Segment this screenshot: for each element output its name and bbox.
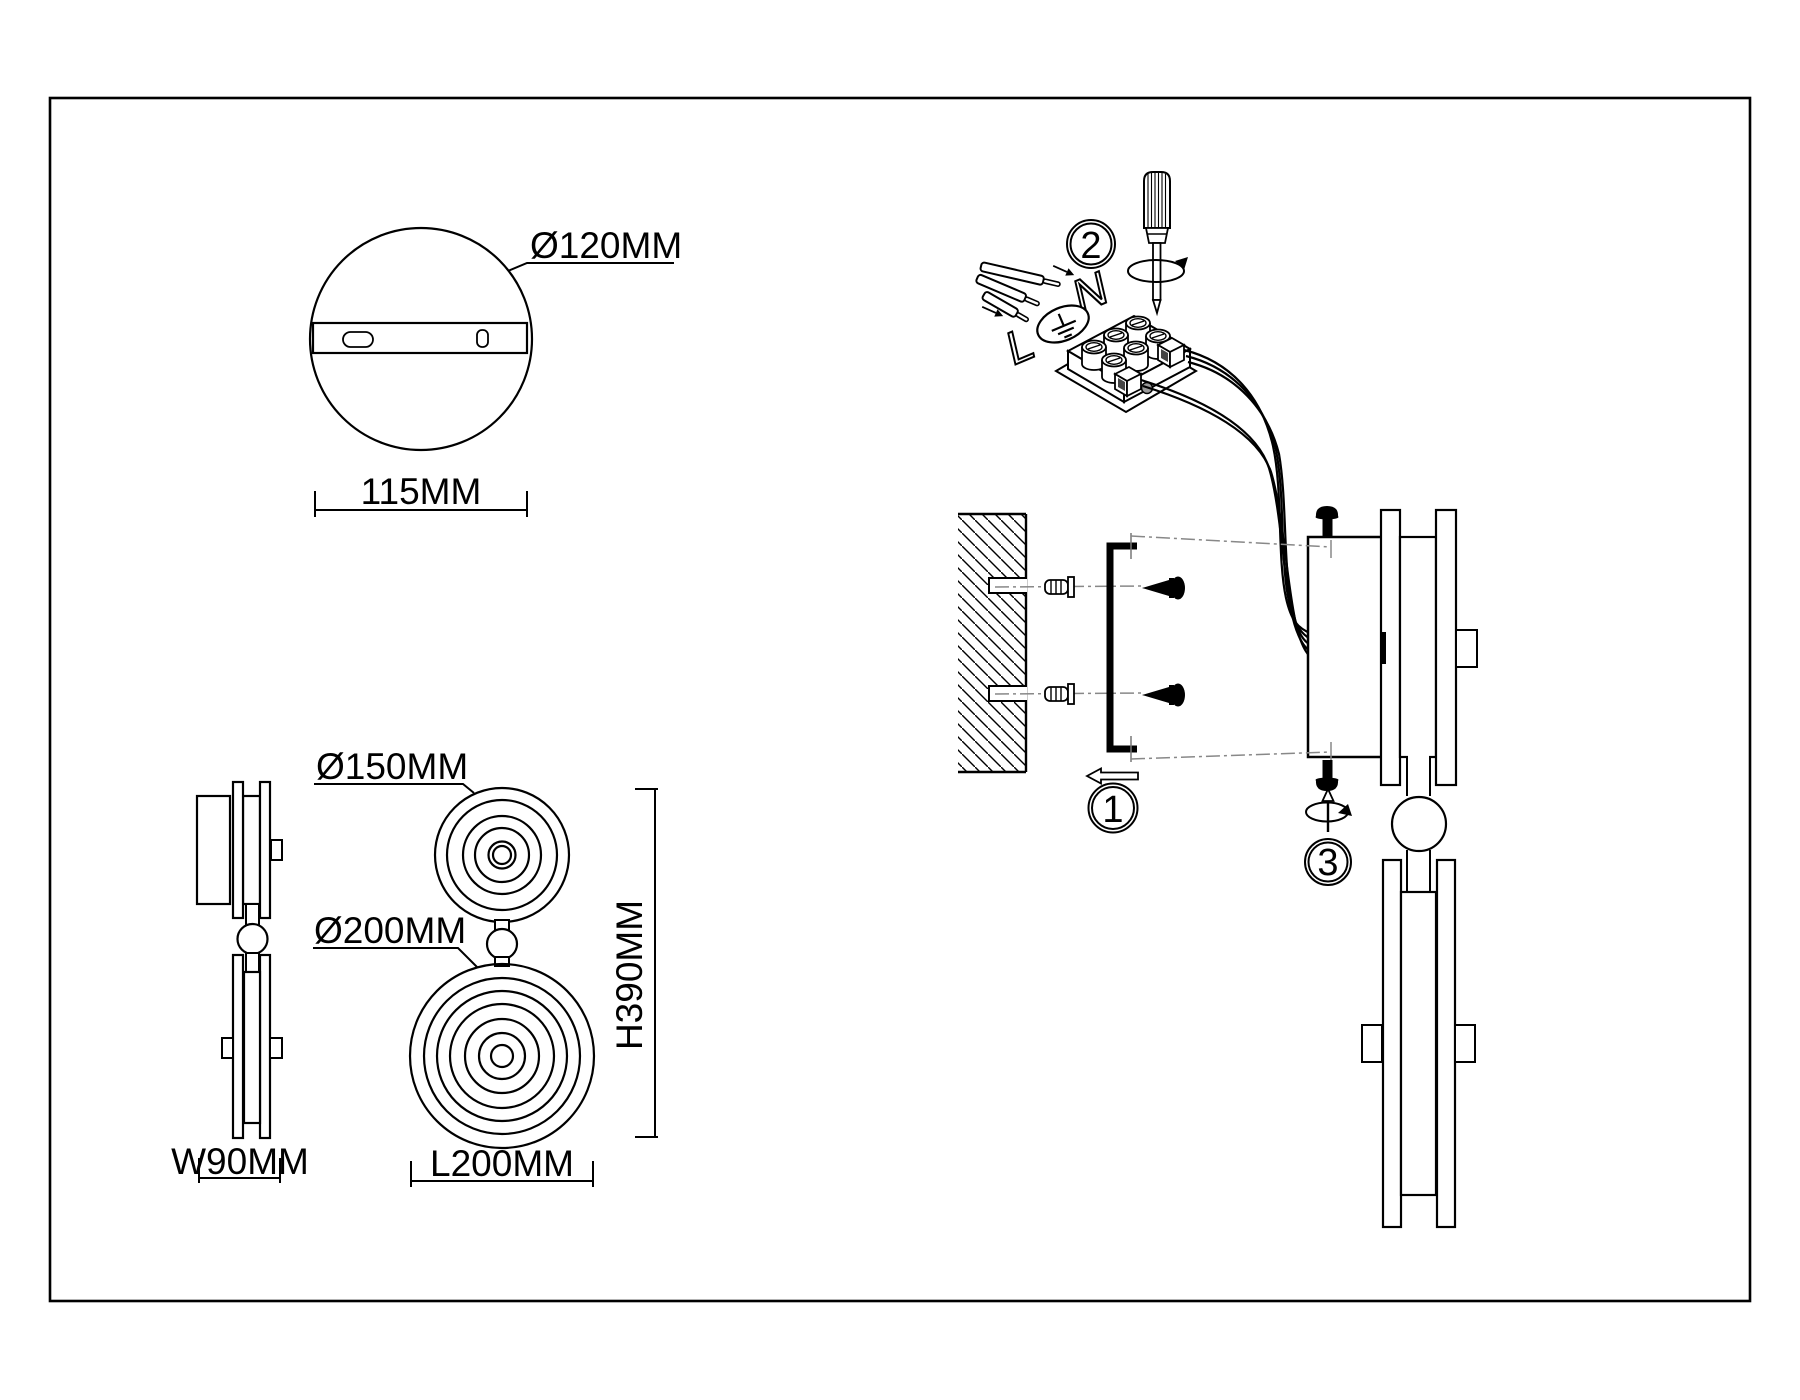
disc-hub-lower: [1401, 892, 1436, 1195]
step-2-number: 2: [1080, 225, 1101, 267]
side-top-disc-front: [260, 782, 270, 918]
fixing-screw-bottom-icon: [1316, 760, 1339, 791]
mounting-screws: [1142, 577, 1185, 707]
canopy-width-dim: 115MM: [315, 471, 527, 517]
drawing-border: [50, 98, 1750, 1301]
lamp-front-view: [410, 788, 594, 1148]
side-mount-box: [197, 796, 230, 904]
step-1-indicator: 1: [1087, 769, 1138, 833]
wall-lamp-installation-drawing: Ø120MM 115MM W90MM: [0, 0, 1800, 1400]
side-bottom-disc-front: [260, 955, 270, 1138]
lamp-driver-box: [1308, 537, 1382, 757]
screw-icon: [1142, 577, 1185, 600]
front-ball-joint: [487, 929, 517, 959]
disc-edge-2: [1436, 510, 1456, 785]
side-top-disc-back: [233, 782, 243, 918]
ball-joint: [1392, 797, 1446, 851]
side-neck-lower: [246, 953, 259, 972]
canopy-width-label: 115MM: [361, 471, 482, 512]
step-1-number: 1: [1102, 789, 1123, 831]
side-bottom-tab-right: [270, 1038, 282, 1058]
step-3-indicator: 3: [1305, 789, 1352, 885]
front-bottom-shade: [410, 964, 594, 1148]
wall-anchor-icon: [1045, 684, 1074, 704]
canopy-back-view: [310, 228, 532, 450]
screw-icon: [1142, 684, 1185, 707]
side-width-label: W90MM: [171, 1141, 309, 1182]
alignment-leader-lines: [1131, 536, 1331, 760]
side-bottom-hub: [244, 972, 260, 1123]
step-3-number: 3: [1317, 842, 1338, 884]
front-top-diameter-label: Ø150MM: [316, 746, 468, 787]
mounting-bracket: [1110, 533, 1137, 762]
disc-black-tab: [1381, 632, 1386, 664]
lamp-side-view: [197, 782, 282, 1138]
front-top-diameter-dim: Ø150MM: [314, 746, 474, 793]
fixing-screw-top-icon: [1316, 506, 1339, 537]
wall-anchors: [1045, 577, 1074, 704]
side-width-dim: W90MM: [171, 1141, 309, 1183]
push-left-arrow-icon: [1087, 769, 1138, 784]
step-2-indicator: 2: [1067, 220, 1115, 268]
canopy-slot-small: [477, 330, 488, 347]
screwdriver-icon: [1128, 172, 1188, 313]
lower-disc-tab-left: [1362, 1025, 1382, 1062]
height-dim: H390MM: [609, 789, 658, 1137]
technical-drawing-page: Ø120MM 115MM W90MM: [0, 0, 1800, 1400]
canopy-slot-oval: [343, 332, 373, 347]
side-top-tab: [271, 840, 282, 860]
wall-section: [958, 514, 1027, 772]
length-label: L200MM: [430, 1143, 574, 1184]
length-dim: L200MM: [411, 1143, 593, 1187]
canopy-diameter-dim: Ø120MM: [508, 225, 682, 271]
lower-disc-edge-2: [1437, 860, 1455, 1227]
canopy-diameter-label: Ø120MM: [530, 225, 682, 266]
front-bottom-diameter-dim: Ø200MM: [313, 910, 477, 967]
disc-side-tab: [1456, 630, 1477, 667]
front-top-shade: [435, 788, 569, 922]
wall-anchor-icon: [1045, 577, 1074, 597]
side-bottom-tab-left: [222, 1038, 233, 1058]
side-top-hub: [243, 796, 260, 904]
disc-hub-upper: [1400, 537, 1436, 757]
side-bottom-disc-back: [233, 955, 243, 1138]
front-bottom-diameter-label: Ø200MM: [314, 910, 466, 951]
terminal-live-letter: L: [1002, 315, 1037, 376]
wire-bundle: [1141, 350, 1312, 658]
lower-disc-edge-1: [1383, 860, 1401, 1227]
lower-disc-tab-right: [1455, 1025, 1475, 1062]
height-label: H390MM: [609, 900, 650, 1050]
side-ball-joint: [238, 924, 268, 954]
